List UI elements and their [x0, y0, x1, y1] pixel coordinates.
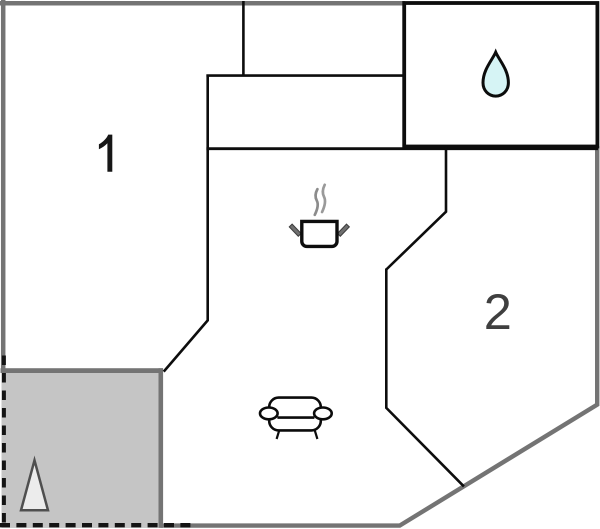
svg-text:2: 2 [484, 283, 512, 340]
